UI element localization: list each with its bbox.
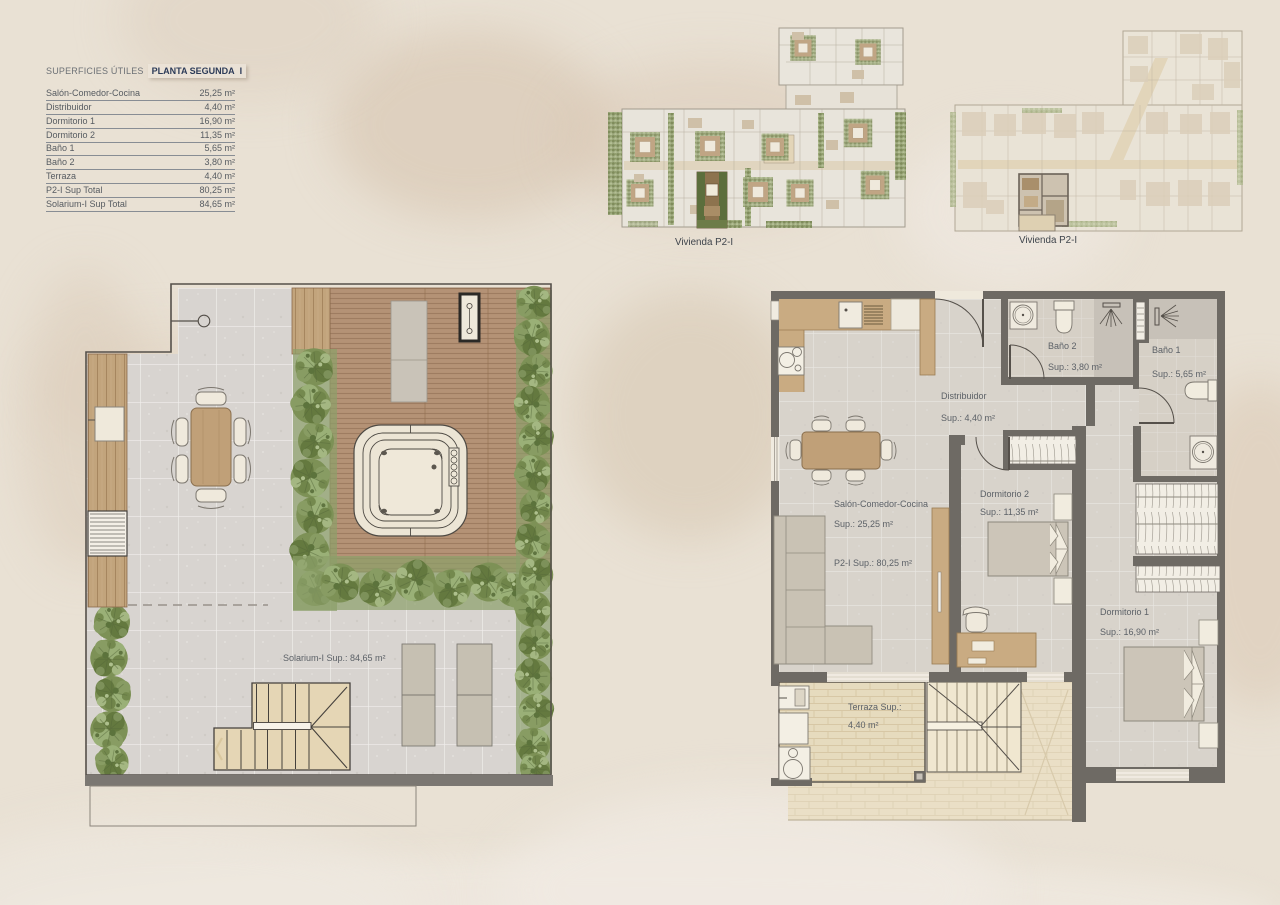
svg-text:Sup.: 4,40 m²: Sup.: 4,40 m²: [941, 413, 995, 423]
svg-text:Baño 2: Baño 2: [1048, 341, 1077, 351]
svg-text:Terraza Sup.:: Terraza Sup.:: [848, 702, 902, 712]
svg-text:Solarium-I Sup.: 84,65 m²: Solarium-I Sup.: 84,65 m²: [283, 653, 386, 663]
svg-text:Distribuidor: Distribuidor: [941, 391, 987, 401]
svg-text:Dormitorio 2: Dormitorio 2: [980, 489, 1029, 499]
svg-text:Vivienda P2-I: Vivienda P2-I: [1019, 235, 1077, 246]
svg-text:Salón-Comedor-Cocina: Salón-Comedor-Cocina: [834, 499, 928, 509]
svg-text:P2-I Sup.: 80,25 m²: P2-I Sup.: 80,25 m²: [834, 558, 912, 568]
svg-text:Sup.: 16,90 m²: Sup.: 16,90 m²: [1100, 627, 1159, 637]
svg-text:Sup.: 5,65 m²: Sup.: 5,65 m²: [1152, 369, 1206, 379]
svg-text:Dormitorio 1: Dormitorio 1: [1100, 607, 1149, 617]
svg-text:Sup.: 3,80 m²: Sup.: 3,80 m²: [1048, 362, 1102, 372]
svg-text:Sup.: 25,25 m²: Sup.: 25,25 m²: [834, 519, 893, 529]
svg-text:Vivienda P2-I: Vivienda P2-I: [675, 237, 733, 248]
svg-text:Sup.: 11,35 m²: Sup.: 11,35 m²: [980, 507, 1038, 517]
svg-text:4,40 m²: 4,40 m²: [848, 720, 879, 730]
svg-text:Baño 1: Baño 1: [1152, 345, 1181, 355]
